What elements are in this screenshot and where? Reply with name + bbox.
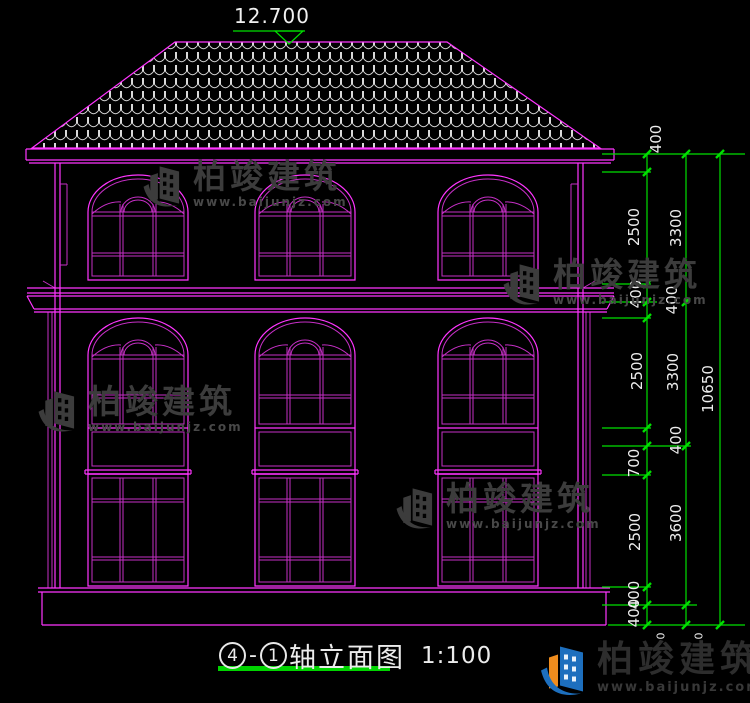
watermark-url: www.baijunjz.com [553,293,708,307]
dim-label: 3600 [667,504,685,542]
dim-label-total: 10650 [699,365,717,413]
dim-label: 2500 [626,513,644,551]
watermark: 柏竣建筑 www.baijunjz.com [501,258,708,308]
brand-logo: 柏竣建筑 www.baijunjz.com [538,641,750,698]
watermark-brand: 柏竣建筑 [193,160,348,194]
axis-bubble-start: 4 [219,642,246,669]
baijun-logo-icon [501,258,545,308]
baijun-logo-icon [141,160,185,210]
dim-label: 3300 [667,209,685,247]
title-scale: 1:100 [421,643,492,669]
level-annotation: 12.700 [234,4,310,28]
title-text: 轴立面图 [289,636,405,675]
baijun-logo-icon [394,482,438,532]
dim-label: 400 [667,426,685,455]
brand-logo-icon [538,641,590,698]
dim-label: 2500 [628,352,646,390]
cad-elevation-drawing: 12.700 400 2500 400 400 2500 400 700 250… [0,0,750,703]
drawing-title: 4 - 1 轴立面图 1:100 [219,636,492,675]
plinth [38,588,610,625]
watermark-url: www.baijunjz.com [193,195,348,209]
watermark: 柏竣建筑 www.baijunjz.com [394,482,601,532]
dim-label: 400 [625,599,643,628]
watermark-brand: 柏竣建筑 [446,482,601,516]
dim-label: 700 [625,449,643,478]
axis-bubble-end: 1 [260,642,287,669]
brand-logo-text: 柏竣建筑 [597,641,750,679]
watermark: 柏竣建筑 www.baijunjz.com [36,385,243,435]
watermark: 柏竣建筑 www.baijunjz.com [141,160,348,210]
dim-label: 2500 [625,208,643,246]
dim-label: 3300 [664,353,682,391]
baijun-logo-icon [36,385,80,435]
watermark-brand: 柏竣建筑 [88,385,243,419]
watermark-brand: 柏竣建筑 [553,258,708,292]
watermark-url: www.baijunjz.com [446,517,601,531]
dim-label: 400 [647,125,665,154]
watermark-url: www.baijunjz.com [88,420,243,434]
axis-dash: - [249,643,257,668]
hipped-roof [32,42,600,148]
brand-logo-url: www.baijunjz.com [597,680,750,695]
